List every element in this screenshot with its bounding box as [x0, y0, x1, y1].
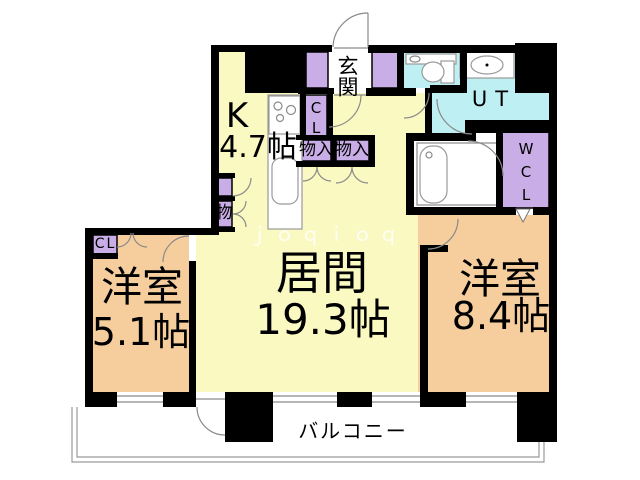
hall-closet-label: CL: [308, 99, 323, 137]
stove: [269, 96, 300, 134]
living-size: 19.3帖: [238, 299, 408, 341]
bedroom-left-closet-label: CL: [93, 237, 118, 251]
balcony-label: バルコニー: [288, 421, 418, 441]
bedroom-left-size: 5.1帖: [86, 313, 196, 351]
walk-in-closet-label: WCL: [518, 138, 533, 210]
kitchen-size: 4.7帖: [210, 133, 306, 163]
kitchen-label: K: [214, 99, 260, 133]
bedroom-left-label: 洋室: [96, 267, 188, 308]
entrance-closet-left: [306, 52, 328, 88]
living-label: 居間: [252, 250, 392, 296]
living-storage-label: 物: [214, 205, 234, 222]
hall-storage-1-label: 物入: [299, 142, 333, 159]
living-storage-upper-box: [217, 178, 232, 196]
bedroom-right-size: 8.4帖: [446, 297, 556, 335]
utility-label: UT: [468, 89, 520, 110]
hall-storage-2-label: 物入: [335, 142, 369, 159]
washbasin-drain: [486, 64, 489, 67]
floor-plan: ｊｏｑｉｏｑ K 4.7帖 玄関 CL 物入 物入 物 UT WCL CL 洋室…: [0, 0, 640, 480]
bathtub: [420, 146, 447, 203]
toilet-bowl: [422, 62, 444, 82]
entrance-label: 玄関: [336, 53, 357, 99]
watermark: ｊｏｑｉｏｑ: [242, 226, 412, 245]
